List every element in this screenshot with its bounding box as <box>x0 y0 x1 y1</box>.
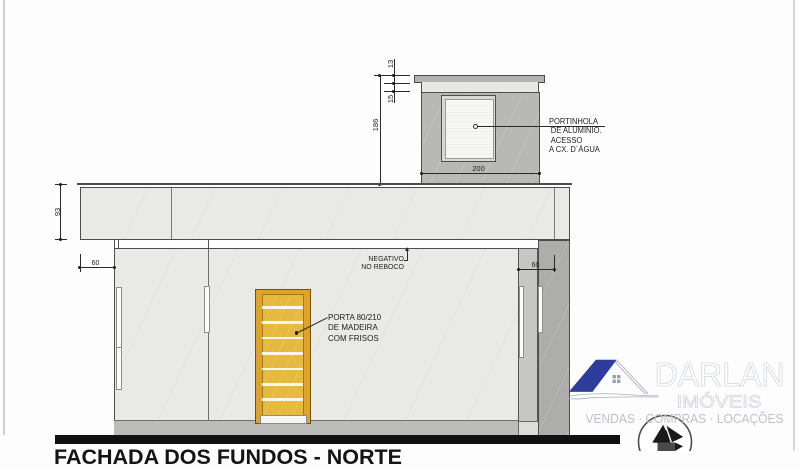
svg-text:DARLAN: DARLAN <box>655 356 785 393</box>
svg-text:VENDAS · COMPRAS · LOCAÇÕES: VENDAS · COMPRAS · LOCAÇÕES <box>586 411 784 426</box>
svg-text:IMÓVEIS: IMÓVEIS <box>677 391 762 412</box>
